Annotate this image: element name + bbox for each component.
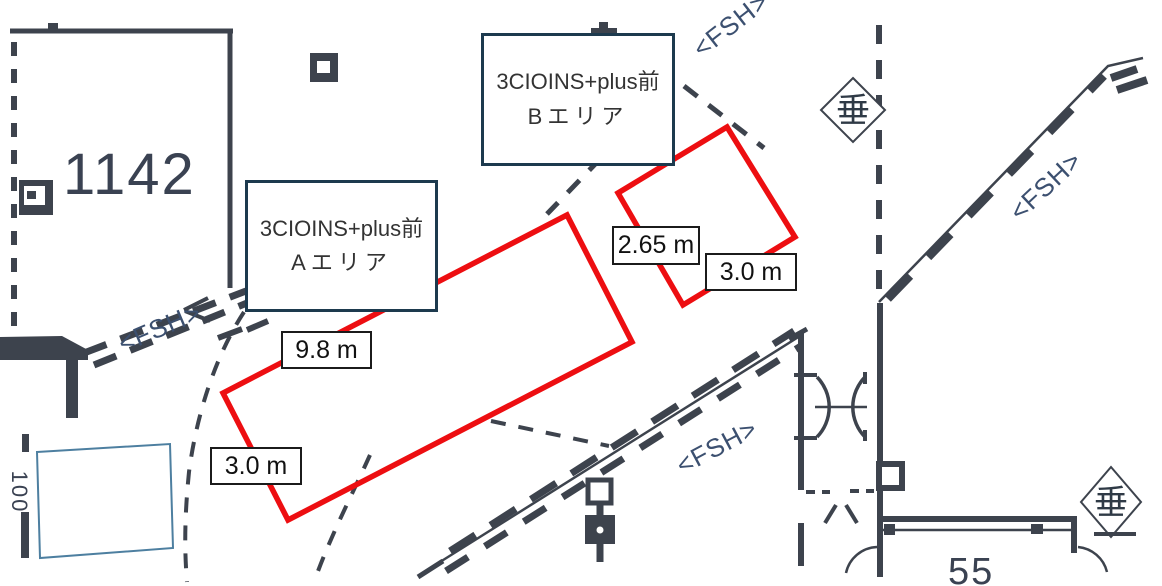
dim-box-b-width: 2.65 m (612, 226, 700, 265)
door-swing-marks (806, 491, 874, 523)
blue-rectangle (37, 444, 173, 558)
right-wall (879, 303, 902, 577)
plumb-symbol-top: 垂 (836, 94, 870, 128)
area-b-title-line1: 3CIOINS+plus前 (496, 65, 659, 99)
area-a-title-line1: 3CIOINS+plus前 (260, 212, 423, 246)
double-door-symbol (794, 333, 867, 566)
floor-plan-canvas: 3CIOINS+plus前 Bエリア 3CIOINS+plus前 Aエリア 2.… (0, 0, 1162, 586)
fsh-line-upper-right (879, 58, 1147, 302)
area-b-label-box: 3CIOINS+plus前 Bエリア (481, 33, 675, 166)
area-b-title-line2: Bエリア (528, 100, 629, 134)
room-number-55: 55 (948, 551, 994, 586)
diagonal-wall-post-symbols (585, 480, 615, 562)
plumb-symbol-bottom: 垂 (1094, 486, 1128, 520)
dim-box-a-width: 9.8 m (281, 331, 372, 369)
column-marker-1142 (19, 180, 53, 215)
dashed-boundary-curves (185, 86, 764, 582)
margin-number-100: 100 (6, 471, 32, 514)
room-number-1142: 1142 (63, 141, 196, 208)
area-a-title-line2: Aエリア (291, 246, 392, 280)
column-marker-top (310, 53, 338, 82)
dim-box-b-depth: 3.0 m (705, 253, 797, 291)
area-a-label-box: 3CIOINS+plus前 Aエリア (245, 180, 438, 312)
dim-box-a-depth: 3.0 m (210, 447, 302, 485)
